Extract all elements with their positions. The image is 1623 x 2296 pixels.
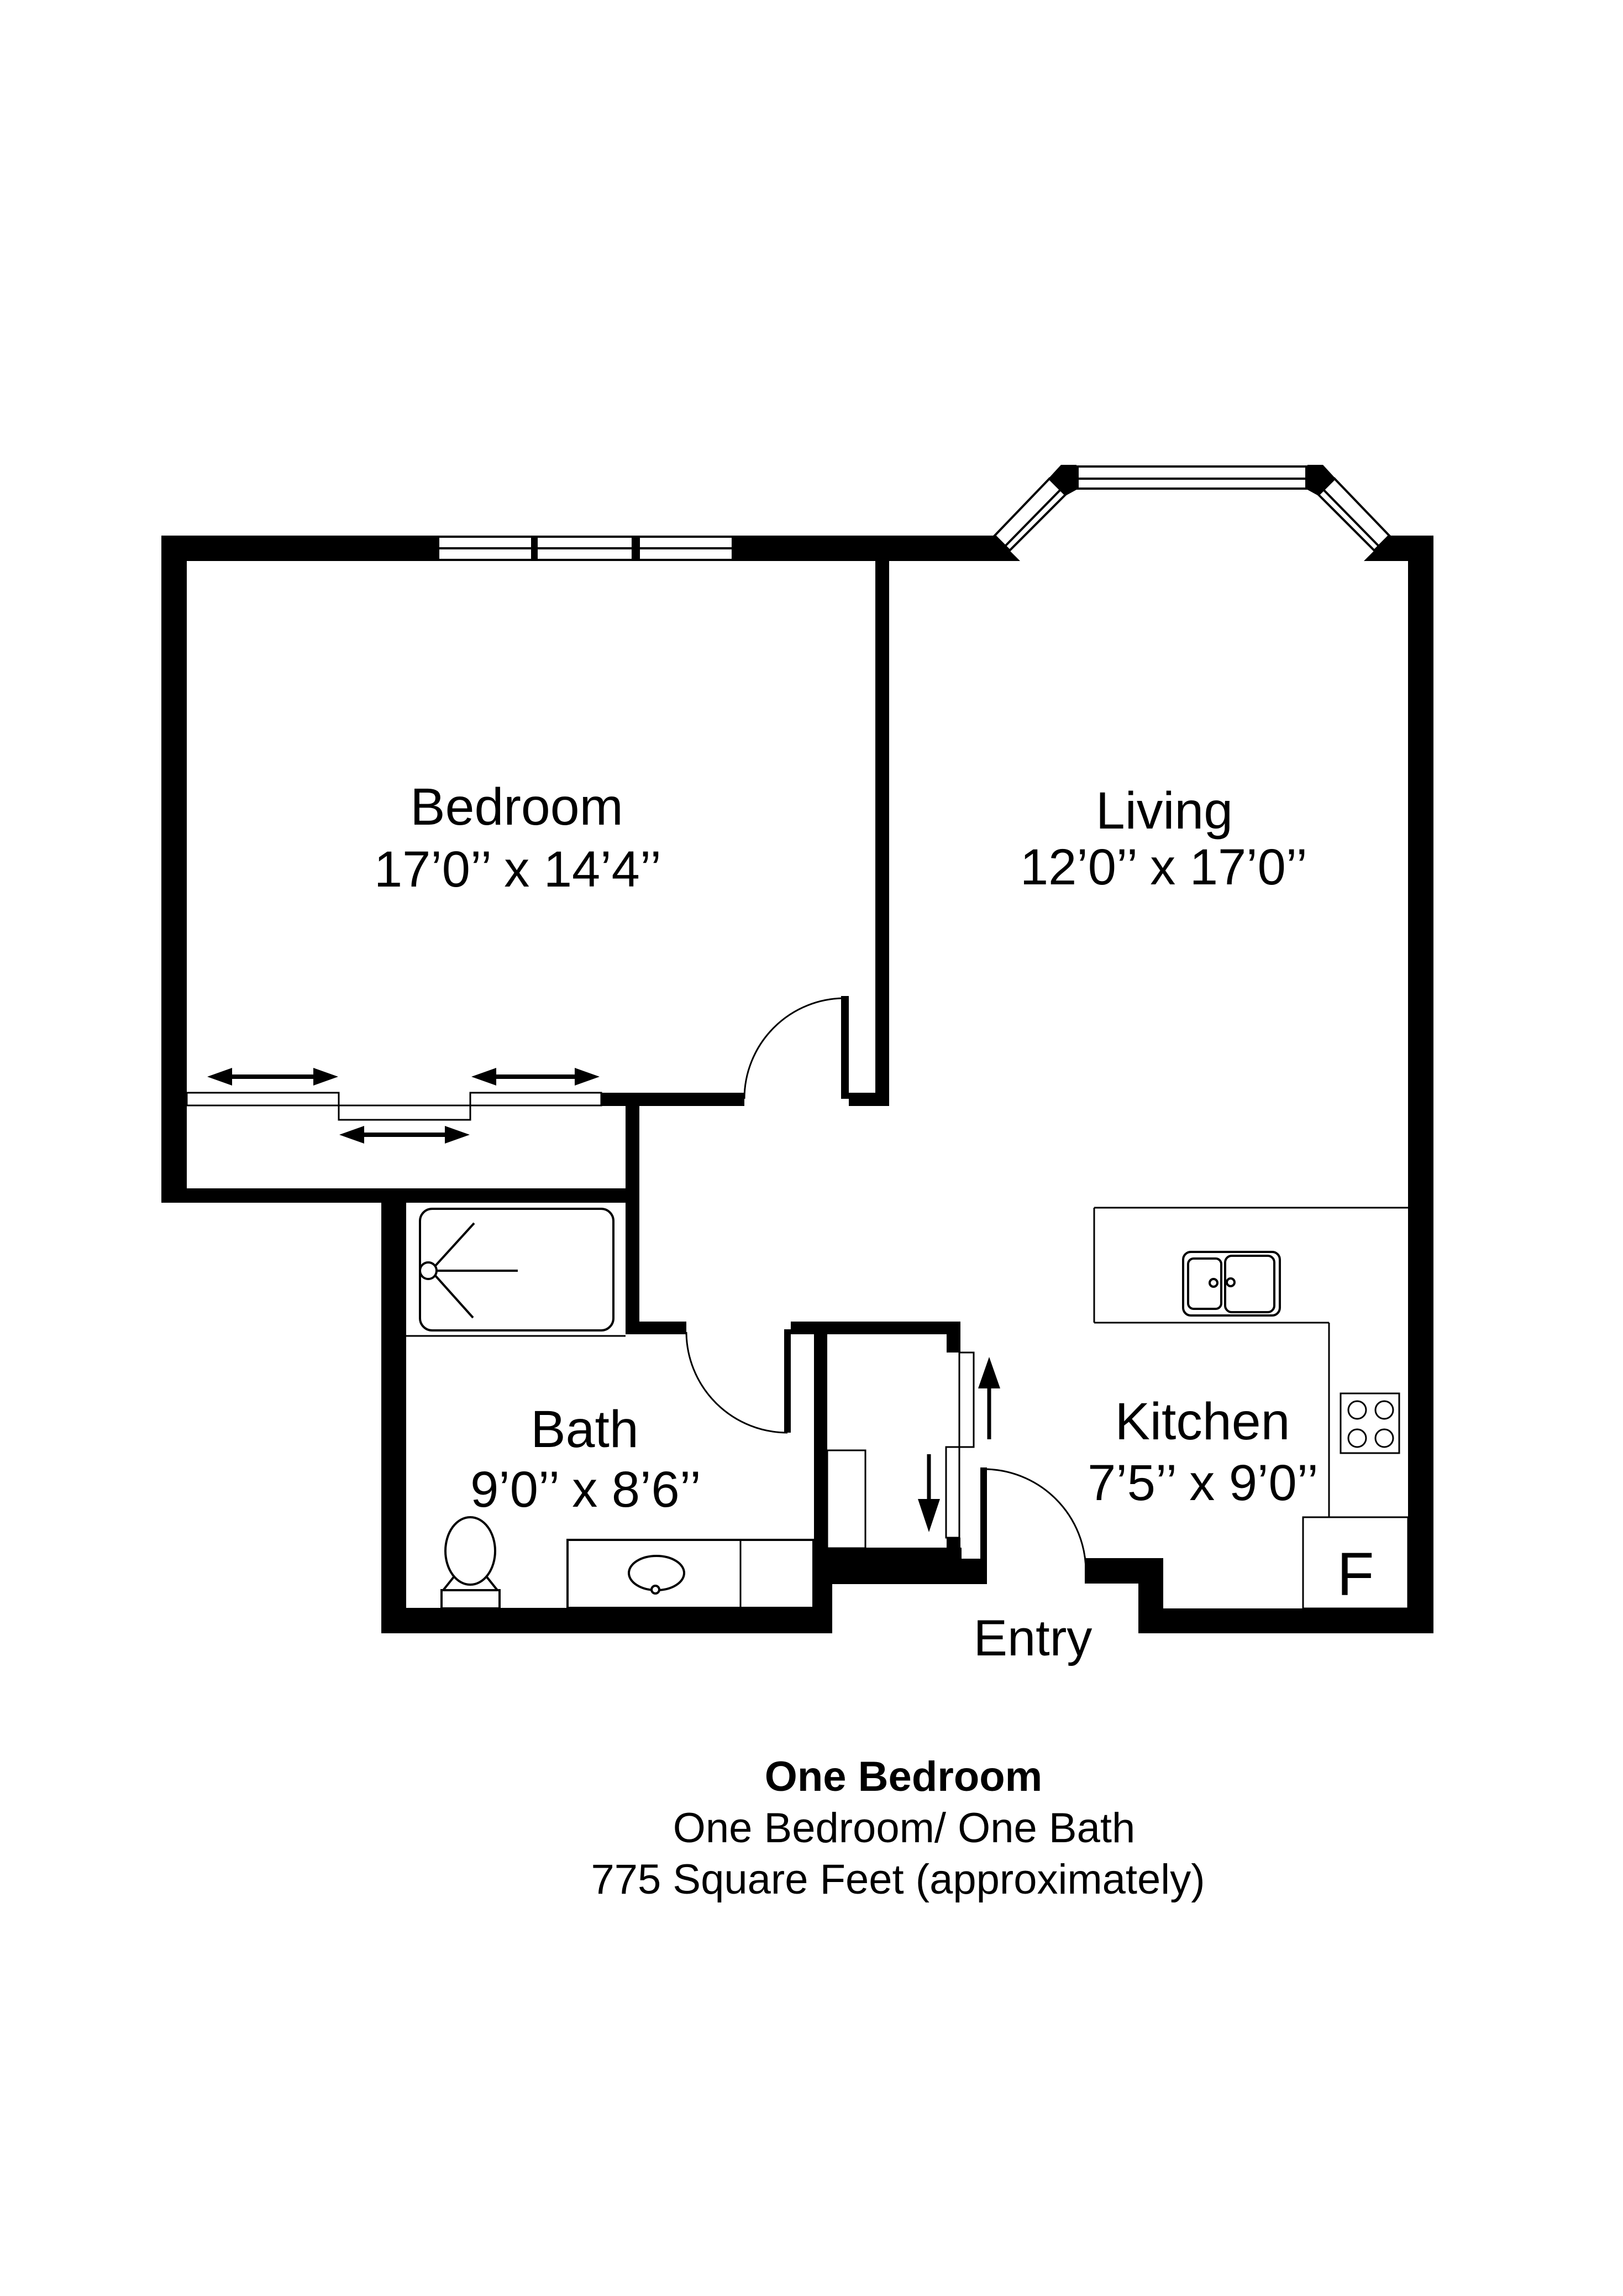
svg-text:F: F — [1337, 1540, 1374, 1608]
svg-text:Living: Living — [1096, 782, 1233, 840]
svg-text:12’0’’ x 17’0’’: 12’0’’ x 17’0’’ — [1020, 839, 1307, 895]
svg-text:Kitchen: Kitchen — [1115, 1392, 1290, 1451]
svg-text:One Bedroom: One Bedroom — [765, 1753, 1043, 1800]
svg-text:7’5’’ x 9’0’’: 7’5’’ x 9’0’’ — [1088, 1455, 1319, 1511]
svg-text:Entry: Entry — [974, 1610, 1092, 1666]
svg-text:9’0’’ x 8’6’’: 9’0’’ x 8’6’’ — [470, 1461, 701, 1518]
svg-text:Bath: Bath — [531, 1400, 638, 1459]
svg-text:Bedroom: Bedroom — [410, 778, 623, 836]
svg-text:One Bedroom/ One Bath: One Bedroom/ One Bath — [673, 1805, 1135, 1852]
svg-text:775 Square Feet (approximately: 775 Square Feet (approximately) — [591, 1856, 1205, 1903]
svg-text:17’0’’ x 14’4’’: 17’0’’ x 14’4’’ — [374, 841, 661, 898]
